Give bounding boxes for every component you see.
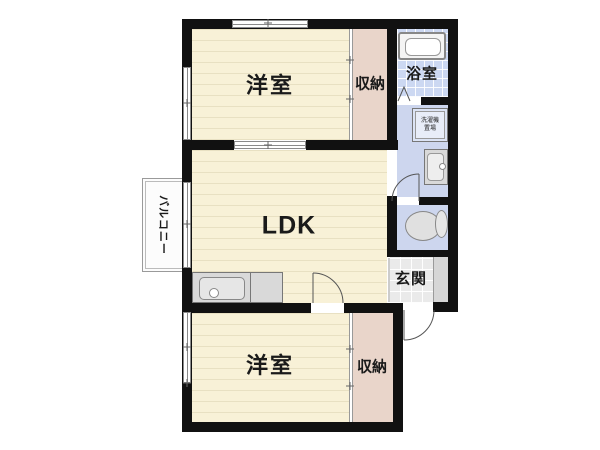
wall-mid-upper-b <box>306 140 398 150</box>
laundry-label-line1: 洗濯機 <box>421 118 439 124</box>
wall-right-column-upper <box>387 19 397 150</box>
wall-mid-upper-a <box>182 140 234 150</box>
bathtub-icon <box>398 32 446 60</box>
laundry-label-line2: 置場 <box>424 126 436 132</box>
wall-bottom <box>182 422 403 432</box>
label-ldk: LDK <box>262 212 316 241</box>
wall-toilet-entrance <box>387 250 458 257</box>
toilet-tank <box>435 210 448 238</box>
washing-machine-inner: 洗濯機 置場 <box>415 111 445 139</box>
label-balcony: バルコニー <box>156 195 172 255</box>
wall-bath-washroom <box>421 97 458 105</box>
kitchen-faucet <box>209 288 219 298</box>
closet-top-sliding-door <box>349 29 353 140</box>
kitchen-counter-divider <box>250 273 251 302</box>
label-bedroom-top: 洋室 <box>246 68 294 100</box>
label-bedroom-bottom: 洋室 <box>246 348 294 380</box>
wall-top <box>182 19 458 29</box>
door-arc-entrance <box>404 310 434 340</box>
entrance-shoe-cabinet <box>433 257 448 303</box>
bathtub-inner <box>405 38 441 56</box>
label-closet-bottom: 収納 <box>357 356 387 377</box>
closet-bottom-sliding-door <box>349 313 353 422</box>
toilet-icon <box>396 205 448 250</box>
wall-closet-bottom-right <box>393 303 403 432</box>
kitchen-sink-bowl <box>199 277 245 300</box>
kitchen-sink-counter-icon <box>192 272 283 303</box>
label-closet-top: 収納 <box>355 73 385 94</box>
wall-mid-lower-a <box>182 303 311 313</box>
label-entrance: 玄関 <box>395 268 427 289</box>
washbasin-drain <box>439 163 446 170</box>
window-left-bedroom-bottom <box>183 312 191 383</box>
wall-right <box>448 19 458 311</box>
balcony-sliding-door <box>183 182 191 268</box>
label-bathroom: 浴室 <box>406 63 438 84</box>
window-left-bedroom-top <box>183 67 191 140</box>
window-top-bedroom <box>232 20 308 28</box>
floorplan-canvas: 洗濯機 置場 <box>0 0 600 450</box>
wall-washroom-toilet <box>419 197 458 205</box>
wall-entrance-pillar <box>433 302 458 312</box>
washbasin-icon <box>424 149 448 185</box>
sliding-door-ldk-bedroom-top <box>234 141 306 149</box>
washing-machine-icon: 洗濯機 置場 <box>412 108 448 142</box>
